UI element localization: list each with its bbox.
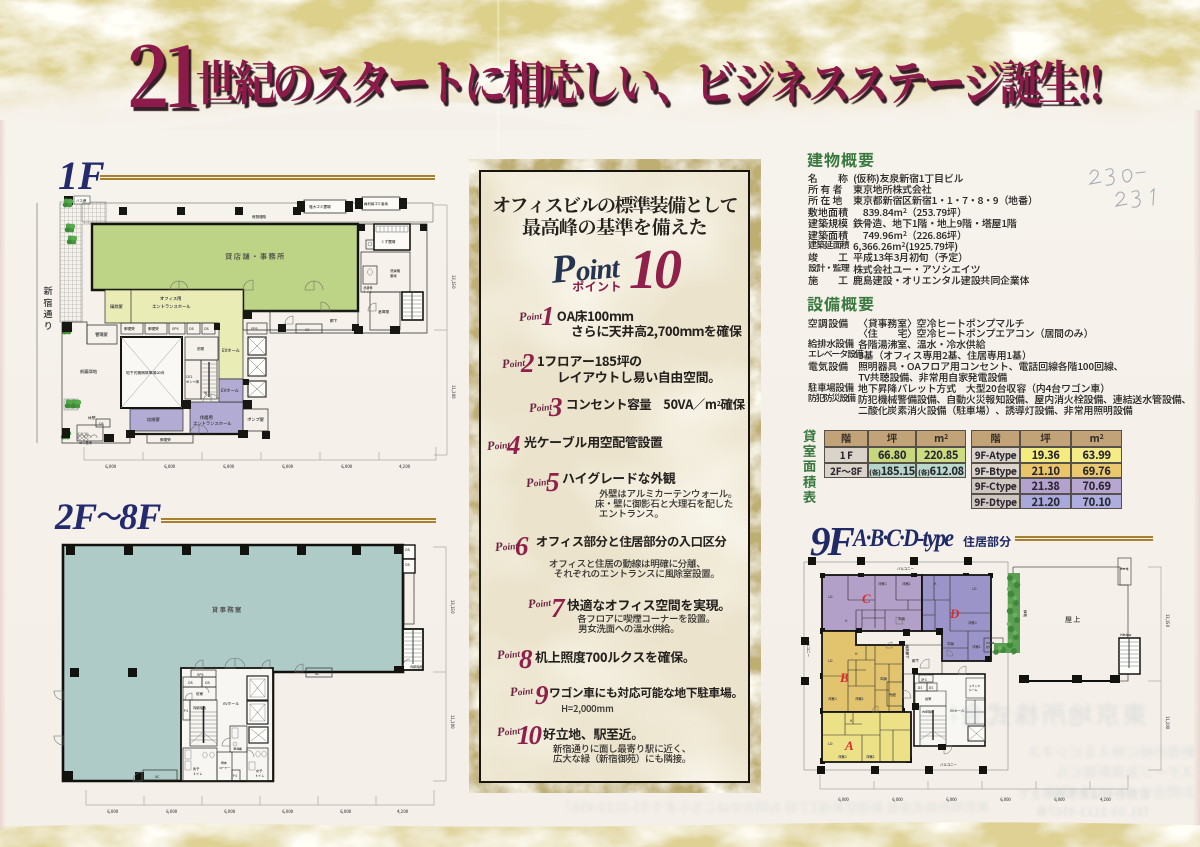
svg-text:喫煙: 喫煙: [221, 761, 227, 765]
svg-text:13,150: 13,150: [1164, 614, 1170, 627]
svg-text:EVホール: EVホール: [222, 348, 241, 354]
svg-text:前室: 前室: [925, 696, 932, 701]
svg-text:11,200: 11,200: [449, 715, 455, 729]
svg-text:ルーム: ルーム: [968, 688, 978, 692]
svg-text:倉庫室: 倉庫室: [378, 310, 390, 315]
svg-text:AC: AC: [305, 328, 310, 333]
svg-text:郵便受: 郵便受: [147, 326, 159, 332]
svg-text:ポンプ室: ポンプ室: [247, 417, 265, 423]
svg-text:13,150: 13,150: [449, 600, 455, 614]
svg-text:荷捌通路: 荷捌通路: [252, 214, 266, 220]
svg-text:3PS: 3PS: [921, 678, 927, 682]
svg-text:置場: 置場: [390, 273, 397, 278]
svg-text:前室: 前室: [196, 691, 203, 697]
svg-text:洋室2: 洋室2: [972, 644, 981, 649]
svg-text:洋室1: 洋室1: [838, 754, 848, 759]
svg-text:貸店舗・事務所: 貸店舗・事務所: [225, 252, 286, 262]
svg-text:トイレ: トイレ: [255, 773, 265, 778]
svg-text:LD: LD: [972, 586, 976, 591]
svg-text:地下式機械駐車場20台: 地下式機械駐車場20台: [125, 370, 165, 376]
svg-text:LD: LD: [828, 741, 832, 746]
svg-text:6,000: 6,000: [105, 464, 117, 470]
svg-text:風除室: 風除室: [109, 304, 124, 310]
svg-text:トイレ: トイレ: [363, 289, 373, 294]
svg-text:光庭: 光庭: [888, 692, 896, 697]
svg-text:郵便受: 郵便受: [123, 326, 135, 332]
svg-text:貸事務室: 貸事務室: [212, 604, 242, 614]
svg-text:LD: LD: [828, 594, 832, 599]
svg-text:6,000: 6,000: [164, 464, 176, 470]
svg-text:6,000: 6,000: [341, 464, 353, 470]
svg-text:13,150: 13,150: [450, 275, 456, 289]
svg-text:A: A: [844, 738, 854, 753]
svg-text:洋室2: 洋室2: [855, 696, 864, 701]
svg-text:洋室2: 洋室2: [866, 754, 875, 759]
svg-text:4,200: 4,200: [399, 464, 411, 470]
svg-text:前面空地: 前面空地: [80, 369, 98, 375]
svg-text:湯沸室: 湯沸室: [233, 747, 242, 751]
svg-text:EPS: EPS: [172, 326, 178, 331]
svg-text:屋上: 屋上: [1065, 615, 1082, 625]
svg-text:外部階段: 外部階段: [409, 664, 424, 669]
svg-text:再利用ゴミ置場: 再利用ゴミ置場: [363, 201, 388, 206]
svg-text:6,000: 6,000: [282, 464, 294, 470]
svg-text:オフィス用: オフィス用: [160, 296, 181, 302]
svg-text:DS: DS: [204, 326, 208, 331]
svg-text:LD: LD: [828, 658, 832, 663]
svg-text:郵便受: 郵便受: [159, 437, 171, 443]
svg-text:廊下: 廊下: [911, 658, 919, 663]
svg-text:塔: 塔: [203, 390, 208, 395]
svg-text:前室: 前室: [197, 346, 205, 352]
svg-text:粗大ゴミ置場: 粗大ゴミ置場: [309, 204, 331, 210]
svg-text:DS: DS: [188, 680, 192, 685]
svg-text:B: B: [839, 670, 849, 685]
svg-text:エントランスホール: エントランスホール: [152, 304, 191, 310]
svg-text:植栽: 植栽: [1023, 609, 1028, 617]
svg-text:洋室1: 洋室1: [968, 620, 978, 625]
svg-text:バルコニー: バルコニー: [940, 762, 957, 767]
svg-text:AC: AC: [315, 672, 320, 677]
svg-text:DS: DS: [929, 686, 933, 690]
svg-text:DS: DS: [918, 686, 922, 690]
svg-text:洋室1: 洋室1: [828, 696, 838, 701]
svg-text:11,200: 11,200: [450, 385, 456, 399]
svg-text:AC: AC: [155, 775, 160, 780]
svg-text:置場: 置場: [986, 645, 992, 649]
svg-text:外部階段: 外部階段: [1119, 633, 1132, 637]
svg-text:廊下: 廊下: [329, 319, 338, 324]
svg-text:6,000: 6,000: [223, 464, 235, 470]
svg-text:DS: DS: [189, 326, 193, 331]
svg-text:応接室: 応接室: [146, 417, 161, 423]
svg-text:DS: DS: [205, 680, 209, 685]
svg-text:玄関: 玄関: [880, 676, 887, 681]
svg-text:玄関: 玄関: [947, 641, 954, 646]
svg-text:ボンベ室: ボンベ室: [186, 379, 200, 384]
svg-text:開放廊下: 開放廊下: [905, 645, 910, 659]
svg-text:休憩: 休憩: [87, 415, 96, 421]
svg-text:EVホール: EVホール: [221, 388, 240, 394]
svg-text:PS: PS: [233, 774, 237, 778]
svg-text:EVホール: EVホール: [223, 702, 239, 707]
svg-text:洋室2: 洋室2: [902, 581, 911, 586]
svg-text:バス停: バス停: [76, 198, 87, 203]
svg-text:DS: DS: [405, 562, 409, 567]
svg-text:PS: PS: [184, 709, 188, 713]
svg-text:C: C: [862, 591, 871, 606]
svg-text:11,200: 11,200: [1164, 716, 1170, 729]
svg-text:トイレ: トイレ: [193, 771, 203, 776]
svg-text:排気塔: 排気塔: [1119, 567, 1129, 571]
svg-text:コーナー: コーナー: [219, 766, 230, 770]
svg-text:管理室: 管理室: [95, 332, 109, 338]
svg-text:バルコニー: バルコニー: [897, 566, 914, 571]
svg-text:内部階段: 内部階段: [193, 705, 207, 710]
svg-text:洋室1: 洋室1: [878, 581, 888, 586]
svg-text:くず置場: くず置場: [381, 239, 396, 245]
svg-text:D: D: [949, 606, 960, 621]
svg-text:EPS: EPS: [197, 672, 203, 677]
svg-text:DS: DS: [405, 547, 409, 552]
svg-text:ゴミ置場: ゴミ置場: [79, 440, 93, 445]
